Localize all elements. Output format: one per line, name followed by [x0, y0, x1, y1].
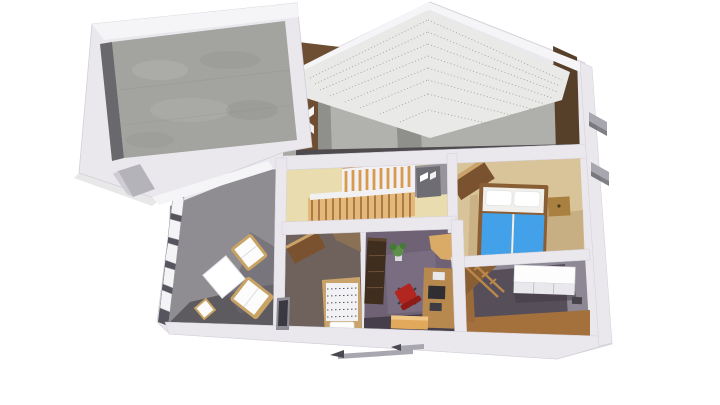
pillow: [514, 191, 541, 207]
monitor: [428, 286, 445, 300]
floor-plan-canvas: [0, 0, 720, 405]
white-cabinet: [513, 265, 575, 295]
bookcase: [364, 238, 386, 305]
storage-room: [461, 256, 590, 342]
vent: [572, 297, 582, 305]
pillow: [486, 190, 513, 206]
sideboard: [391, 315, 428, 329]
paper: [433, 272, 445, 280]
wall-opening: [278, 300, 288, 326]
gray-door: [416, 166, 441, 198]
patterned-duvet: [326, 283, 358, 321]
small-bedroom: [284, 228, 362, 337]
office: [364, 223, 457, 338]
nightstand: [548, 196, 571, 216]
floorplan-3d-render: [0, 0, 720, 405]
printer: [430, 303, 442, 311]
